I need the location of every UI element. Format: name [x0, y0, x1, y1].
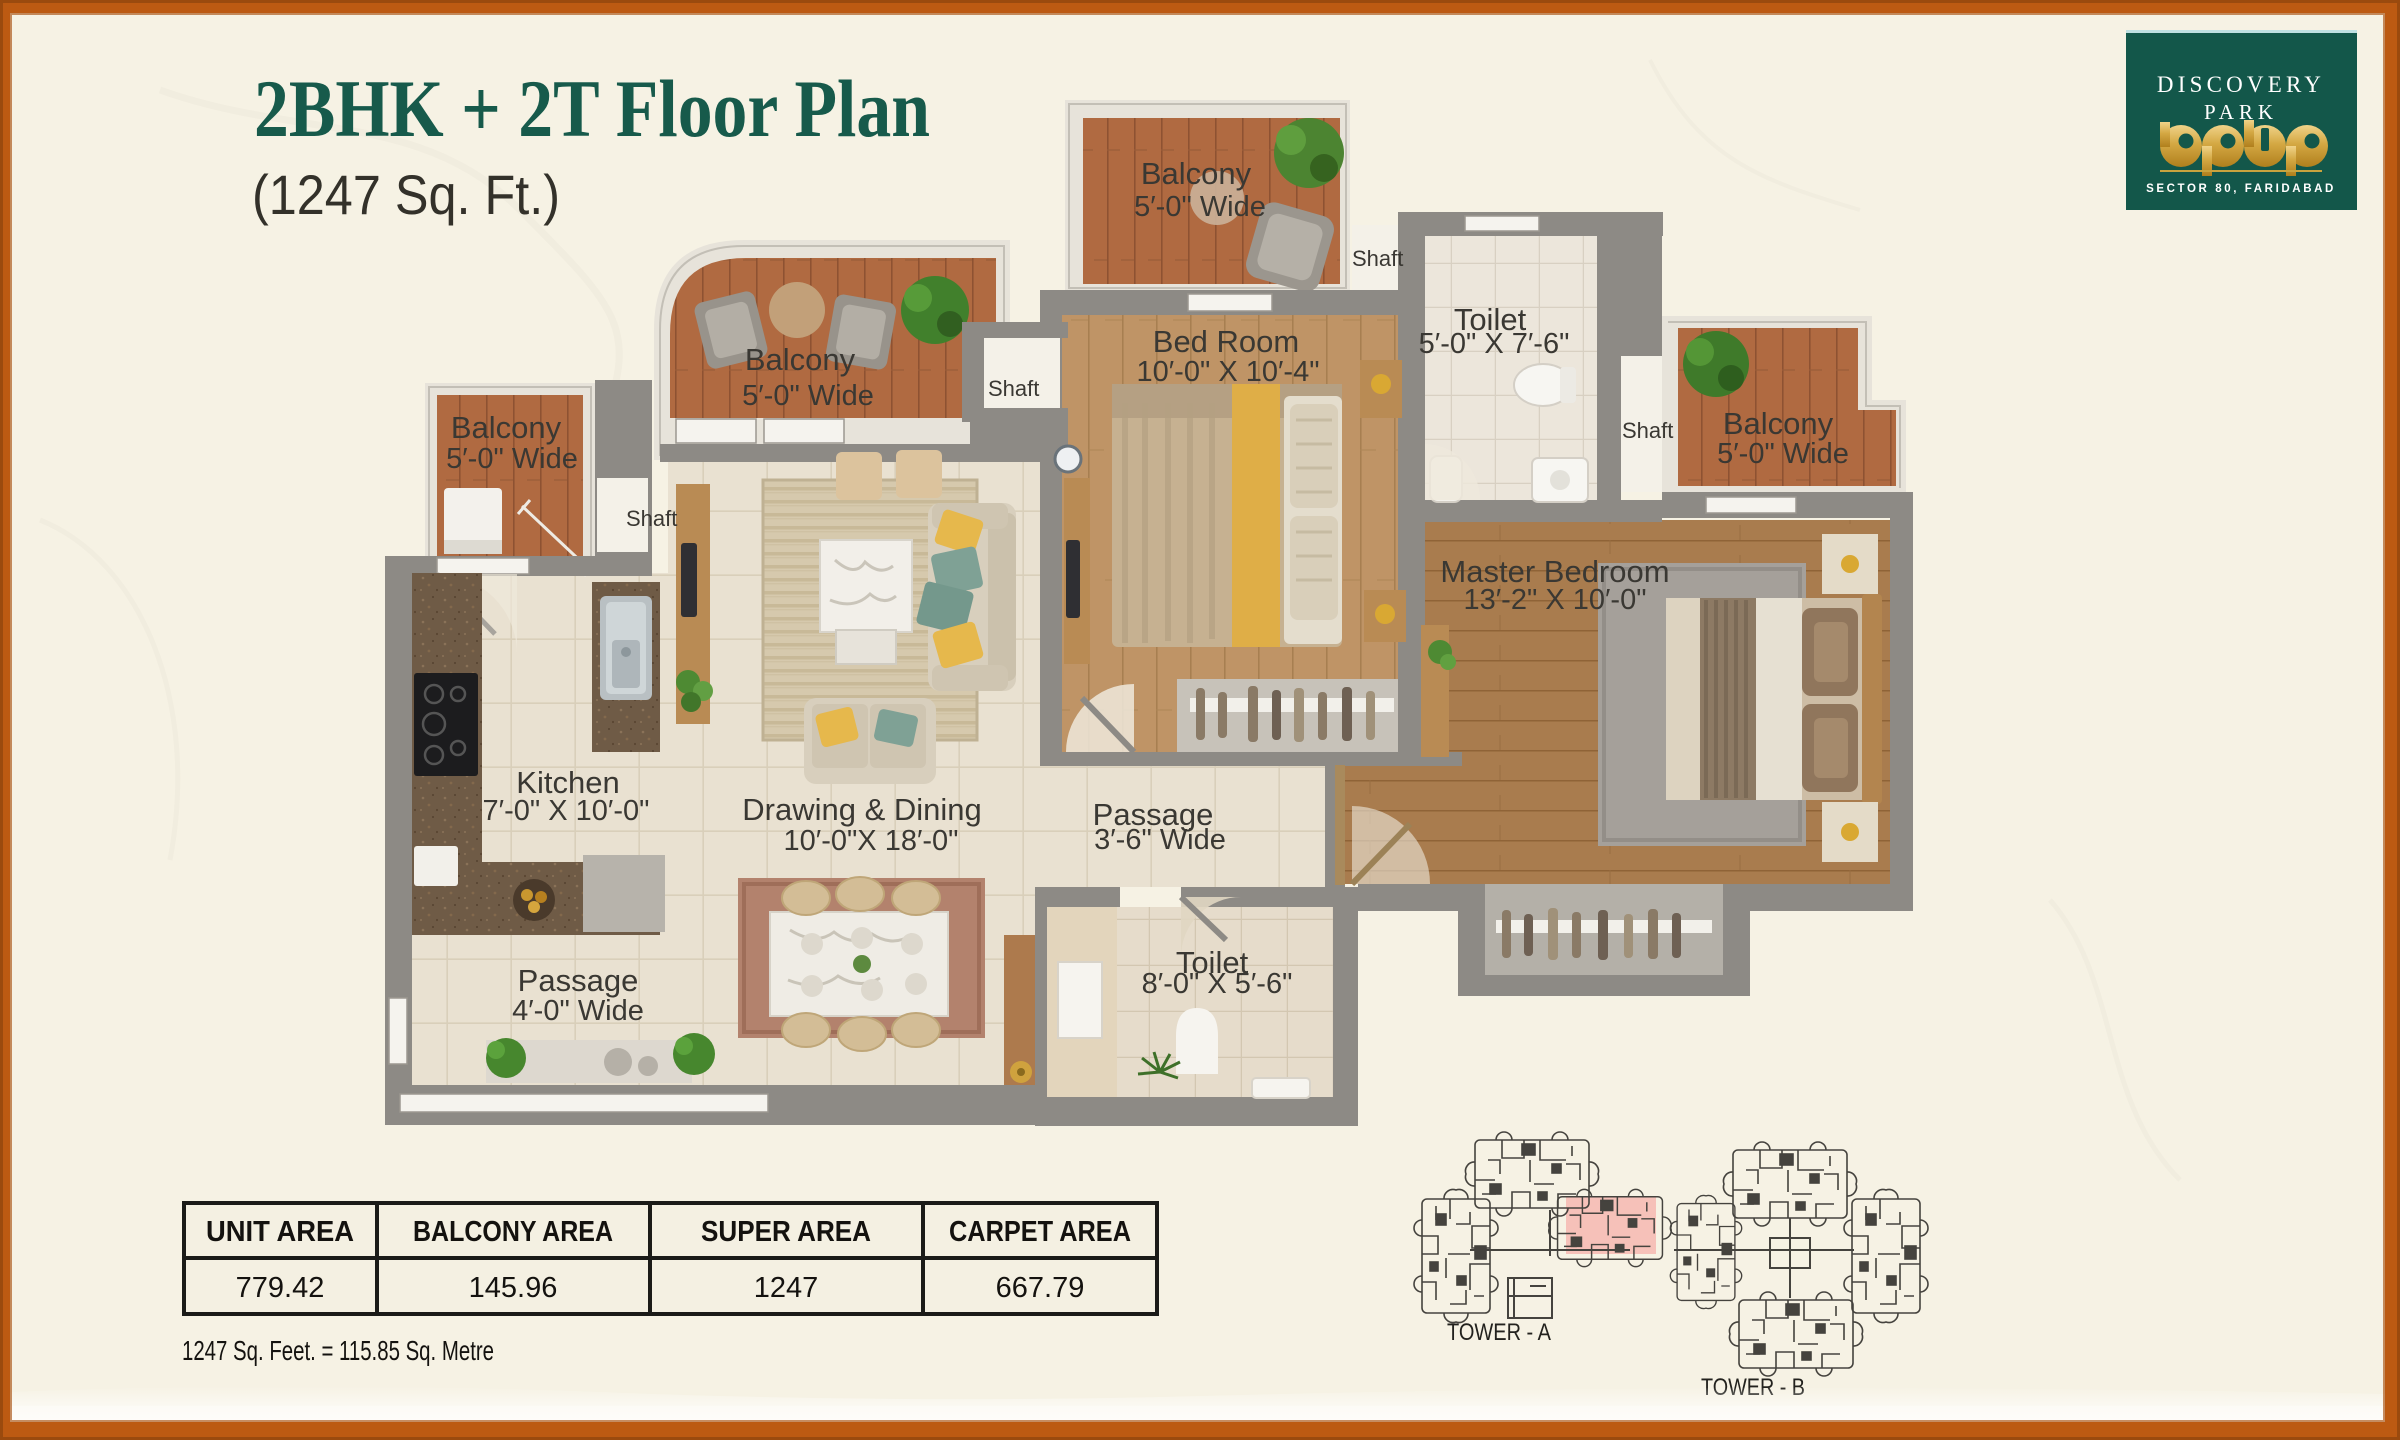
svg-text:3′-6" Wide: 3′-6" Wide — [1094, 824, 1226, 856]
svg-text:Passage: Passage — [518, 963, 639, 998]
svg-text:1247: 1247 — [754, 1272, 819, 1304]
svg-text:5′-0" Wide: 5′-0" Wide — [1717, 438, 1849, 470]
svg-text:(1247 Sq. Ft.): (1247 Sq. Ft.) — [252, 163, 560, 226]
svg-text:Shaft: Shaft — [1622, 418, 1673, 443]
svg-text:10′-0"X 18′-0": 10′-0"X 18′-0" — [784, 825, 959, 857]
svg-text:4′-0" Wide: 4′-0" Wide — [512, 995, 644, 1027]
svg-text:8′-0" X 5′-6": 8′-0" X 5′-6" — [1142, 968, 1293, 1000]
svg-text:5′-0" Wide: 5′-0" Wide — [446, 443, 578, 475]
svg-text:7′-0" X 10′-0": 7′-0" X 10′-0" — [483, 795, 650, 827]
svg-text:2BHK + 2T Floor Plan: 2BHK + 2T Floor Plan — [254, 63, 930, 154]
svg-text:Balcony: Balcony — [1723, 406, 1834, 441]
svg-text:1247 Sq. Feet. = 115.85 Sq. Me: 1247 Sq. Feet. = 115.85 Sq. Metre — [182, 1335, 494, 1366]
svg-text:145.96: 145.96 — [469, 1272, 558, 1304]
svg-text:667.79: 667.79 — [996, 1272, 1085, 1304]
svg-text:DISCOVERY: DISCOVERY — [2157, 72, 2325, 97]
svg-text:779.42: 779.42 — [236, 1272, 325, 1304]
svg-text:Bed Room: Bed Room — [1153, 324, 1299, 359]
svg-text:5′-0" Wide: 5′-0" Wide — [1134, 191, 1266, 223]
svg-text:PARK: PARK — [2204, 100, 2278, 124]
svg-text:CARPET AREA: CARPET AREA — [949, 1216, 1131, 1248]
svg-text:Shaft: Shaft — [988, 376, 1039, 401]
svg-text:Shaft: Shaft — [626, 506, 677, 531]
svg-text:SUPER AREA: SUPER AREA — [701, 1216, 871, 1248]
svg-text:UNIT AREA: UNIT AREA — [206, 1216, 354, 1248]
svg-text:5′-0" Wide: 5′-0" Wide — [742, 380, 874, 412]
svg-text:Drawing & Dining: Drawing & Dining — [742, 792, 982, 827]
svg-text:SECTOR 80, FARIDABAD: SECTOR 80, FARIDABAD — [2146, 183, 2336, 195]
svg-text:BALCONY AREA: BALCONY AREA — [413, 1216, 613, 1248]
svg-text:TOWER - A: TOWER - A — [1447, 1319, 1551, 1346]
svg-text:5′-0" X 7′-6": 5′-0" X 7′-6" — [1419, 328, 1570, 360]
svg-text:Balcony: Balcony — [451, 410, 562, 445]
svg-text:10′-0" X 10′-4": 10′-0" X 10′-4" — [1136, 356, 1319, 388]
svg-text:13′-2" X 10′-0": 13′-2" X 10′-0" — [1463, 584, 1646, 616]
svg-text:Shaft: Shaft — [1352, 246, 1403, 271]
svg-text:Balcony: Balcony — [745, 342, 856, 377]
svg-text:Balcony: Balcony — [1141, 156, 1252, 191]
